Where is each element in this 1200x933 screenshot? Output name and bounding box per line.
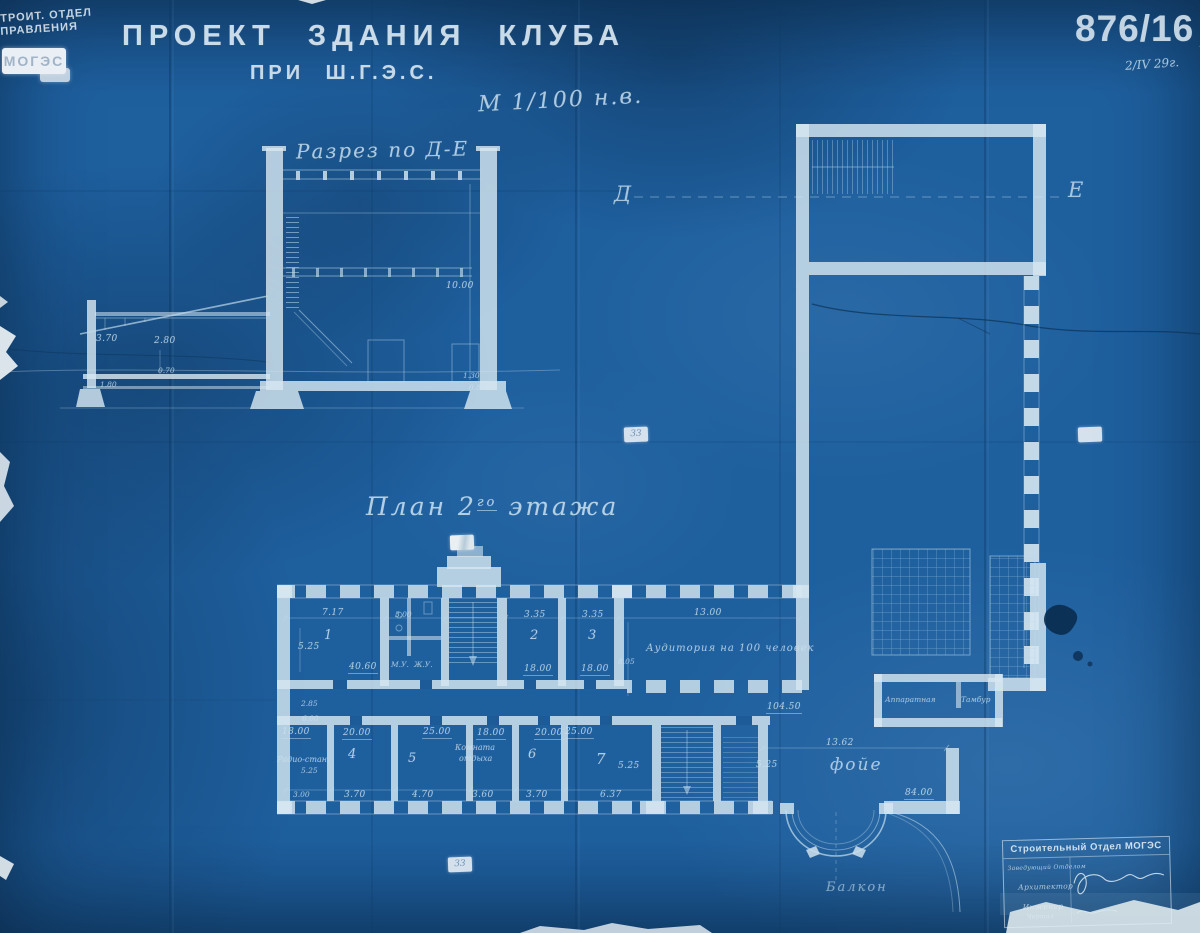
room5-area: 25.00 (422, 727, 452, 739)
balcony-label: Балкон (826, 880, 888, 895)
radio-label: Радио-стан. (277, 755, 330, 764)
ink-blots (1044, 605, 1093, 667)
dim-annex-floor: 1.80 (100, 380, 117, 389)
room1-number: 1 (324, 628, 332, 643)
drawing-title: ПРОЕКТ ЗДАНИЯ КЛУБА (122, 20, 625, 53)
dim-room5-w: 4.70 (412, 790, 434, 800)
room6-area: 20.00 (534, 728, 564, 740)
sheet-number-value: 876/16 (1075, 8, 1194, 49)
room7-number: 7 (596, 750, 606, 768)
blueprint-sheet: СТРОИТ. ОТДЕЛ УПРАВЛЕНИЯ МОГЭС ПРОЕКТ ЗД… (0, 0, 1200, 933)
logo-smudge (40, 68, 70, 82)
room3-area: 18.00 (580, 664, 610, 676)
repair-patch-2 (1078, 427, 1103, 443)
glass-grid-left (872, 549, 970, 655)
room5-number: 5 (408, 751, 416, 766)
dim-radio-h: 5.25 (301, 766, 318, 775)
room2-number: 2 (530, 628, 538, 643)
balcony-arcs (786, 810, 960, 912)
footer-stamp-row3: Инженер (1023, 902, 1064, 912)
dim-corridor: 2.85 (301, 699, 318, 708)
dim-room4-w: 3.70 (344, 790, 366, 800)
room7-area: 25.00 (564, 727, 594, 739)
foyer-upper-area: 104.50 (766, 702, 802, 714)
dim-room1-w: 7.17 (322, 608, 344, 618)
glass-grid-right (990, 556, 1035, 678)
footer-stamp: Строительный Отдел МОГЭС Заведующий Отде… (1002, 836, 1172, 928)
dim-foyer-h: 5.25 (756, 760, 778, 770)
room3-number: 3 (588, 628, 596, 643)
dim-hall-height: 10.00 (446, 281, 474, 291)
plan-lines (277, 585, 949, 814)
dim-toilets-w: 3.00 (395, 610, 412, 619)
auditorium-label: Аудитория на 100 человек (646, 643, 815, 654)
toilet-j-label: Ж.У. (414, 660, 433, 669)
dim-foyer-w: 13.62 (826, 738, 854, 748)
repair-patch-1: 33 (624, 427, 649, 443)
dim-annex-beam: 0.70 (158, 366, 175, 375)
dim-room2-w: 3.35 (524, 610, 546, 620)
dim-auditorium-w: 13.00 (694, 608, 722, 618)
room4-area: 20.00 (342, 728, 372, 740)
dim-base-upper: 1.30 (463, 371, 480, 380)
foyer-area: 84.00 (904, 788, 934, 800)
room6-number: 6 (528, 747, 536, 762)
plan-title-prefix: План 2 (366, 492, 477, 521)
draftsman-signature (1077, 910, 1117, 914)
footer-stamp-row4: Чертил (1027, 913, 1054, 921)
room2-area: 18.00 (523, 664, 553, 676)
foyer-label: фойе (830, 755, 883, 775)
dim-corridor2: 6.00 (302, 714, 319, 723)
section-title: Разрез по Д-Е (296, 136, 469, 163)
plan-title-suffix: этажа (508, 492, 619, 521)
repair-patch-4: 33 (448, 857, 473, 873)
footer-stamp-row2: Архитектор (1018, 881, 1073, 891)
sheet-number: 876/16А (1075, 8, 1200, 50)
architect-signature (1074, 871, 1165, 894)
dim-auditorium-h: 8.05 (618, 657, 635, 666)
dim-room7-h: 5.25 (618, 761, 640, 771)
axis-letter-e: Е (1068, 178, 1083, 202)
repair-patch-3 (450, 535, 475, 551)
room1-area: 40.60 (348, 662, 378, 674)
plan-walls (277, 546, 960, 858)
dim-annex-width: 2.80 (154, 336, 176, 346)
dim-room7-w: 6.37 (600, 790, 622, 800)
toilet-m-label: М.У. (391, 660, 409, 669)
apparatus-label: Аппаратная (885, 695, 936, 704)
tambour-label: Тамбур (961, 695, 990, 704)
dim-restroom-w: 3.60 (472, 790, 494, 800)
signatures (1067, 855, 1169, 924)
section-drawing (76, 146, 512, 409)
room4-number: 4 (348, 747, 356, 762)
plan-title-sup: го (477, 495, 497, 511)
dim-radio-w: 3.00 (293, 790, 310, 799)
radio-area: 18.00 (281, 727, 311, 739)
dim-room3-w: 3.35 (582, 610, 604, 620)
plan-title: План 2го этажа (366, 492, 619, 521)
drawing-subtitle: ПРИ Ш.Г.Э.С. (250, 62, 437, 85)
dim-section-left: 3.70 (96, 334, 118, 344)
restroom-area: 18.00 (476, 728, 506, 740)
restroom-label1: Комната (455, 743, 495, 752)
restroom-label2: отдыха (459, 754, 492, 763)
axis-letter-d: Д (614, 182, 631, 206)
dim-base-lower: 0.80 (469, 383, 486, 392)
dim-room1-h: 5.25 (298, 642, 320, 652)
dim-room6-w: 3.70 (526, 790, 548, 800)
